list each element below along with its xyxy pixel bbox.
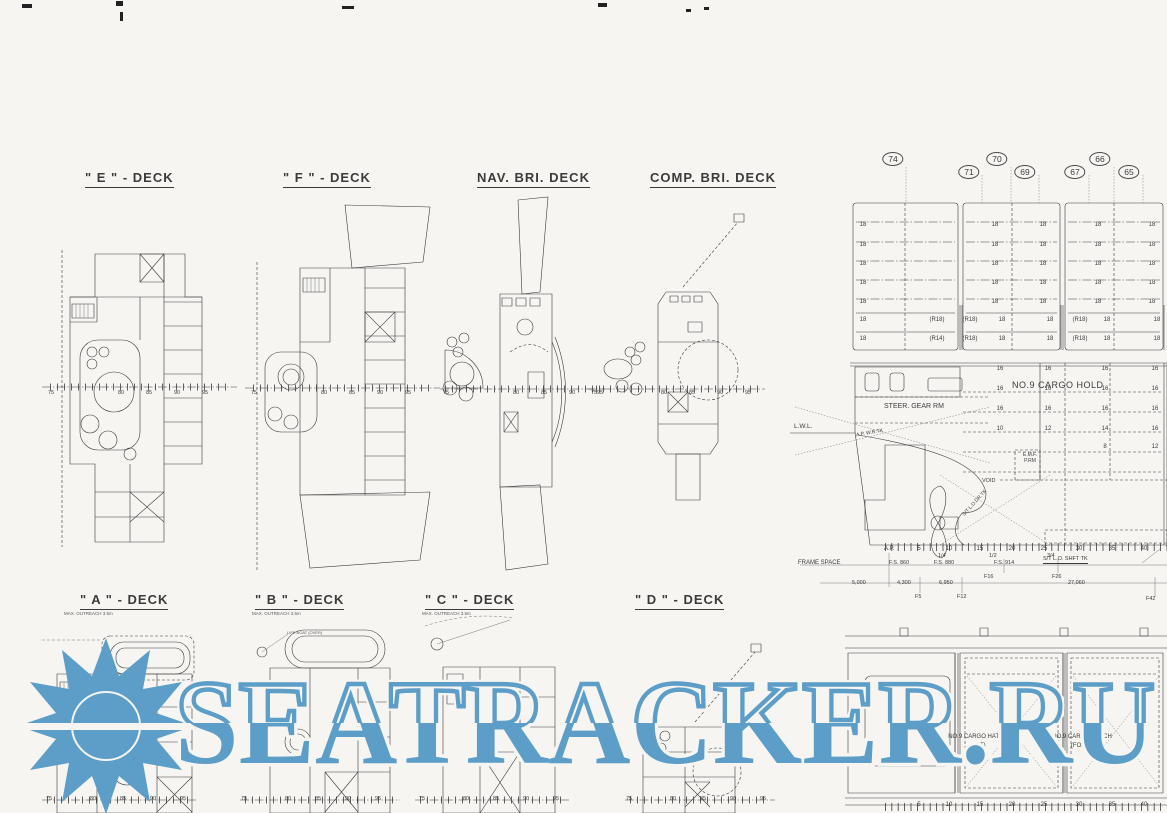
propeller <box>930 486 958 558</box>
deck-title-nav: NAV. BRI. DECK <box>477 170 590 188</box>
watermark-text: SEATRACKER.RU SEATRACKER.RU SEATRACKER.R… <box>175 665 1167 777</box>
deck-plan-nav <box>440 192 605 577</box>
frame-ref: F16 <box>984 574 993 580</box>
frame-spacing-value: F.S. 880 <box>934 560 954 566</box>
frame-ref: F5 <box>915 594 921 600</box>
scan-mark <box>120 12 123 21</box>
frame-spacing-value: F.S. 914 <box>994 560 1014 566</box>
scan-mark <box>116 1 123 6</box>
scan-mark <box>598 3 607 7</box>
void-label: VOID <box>982 478 995 484</box>
scan-mark <box>342 6 354 9</box>
frame-spacing-value: F.S. 860 <box>889 560 909 566</box>
waterline-label: L.W.L. <box>794 423 812 430</box>
quarter-mark: 1/2 <box>989 553 997 559</box>
frame-ref: F42 <box>1146 596 1155 602</box>
shaft-tank-label: S/T L.O. SHFT TK <box>1043 556 1088 564</box>
steer-gear-label: STEER. GEAR RM <box>884 403 944 410</box>
quarter-mark: 1/4 <box>938 553 946 559</box>
deck-plan-comp <box>588 192 765 577</box>
dimension-value: 27,060 <box>1068 580 1085 586</box>
deck-title-c: " C " - DECK <box>425 592 514 610</box>
deck-plan-f <box>245 192 440 582</box>
deck-title-b: " B " - DECK <box>255 592 344 610</box>
deck-title-e: " E " - DECK <box>85 170 174 188</box>
frame-space-label: FRAME SPACE <box>798 560 841 566</box>
stern-profile-view <box>790 145 1167 610</box>
ship-general-arrangement-drawing: " E " - DECK " F " - DECK NAV. BRI. DECK… <box>0 0 1167 813</box>
scan-mark <box>686 9 691 12</box>
deck-title-a: " A " - DECK <box>80 592 168 610</box>
deck-title-comp: COMP. BRI. DECK <box>650 170 776 188</box>
sun-logo-icon <box>14 640 199 813</box>
deck-title-f: " F " - DECK <box>283 170 371 188</box>
scan-mark <box>22 4 32 8</box>
scan-mark <box>704 7 709 10</box>
dimension-value: 6,950 <box>939 580 953 586</box>
ap-label: A.P. <box>884 546 895 552</box>
frame-ref: F26 <box>1052 574 1061 580</box>
deck-plan-e <box>42 192 237 577</box>
frame-ref: F12 <box>957 594 966 600</box>
emf-room-label: E.M.F. P.RM <box>1017 452 1043 464</box>
deck-title-d: " D " - DECK <box>635 592 724 610</box>
dimension-value: 5,000 <box>852 580 866 586</box>
dimension-value: 4,300 <box>897 580 911 586</box>
cargo-hold-label: NO.9 CARGO HOLD <box>1012 380 1104 390</box>
